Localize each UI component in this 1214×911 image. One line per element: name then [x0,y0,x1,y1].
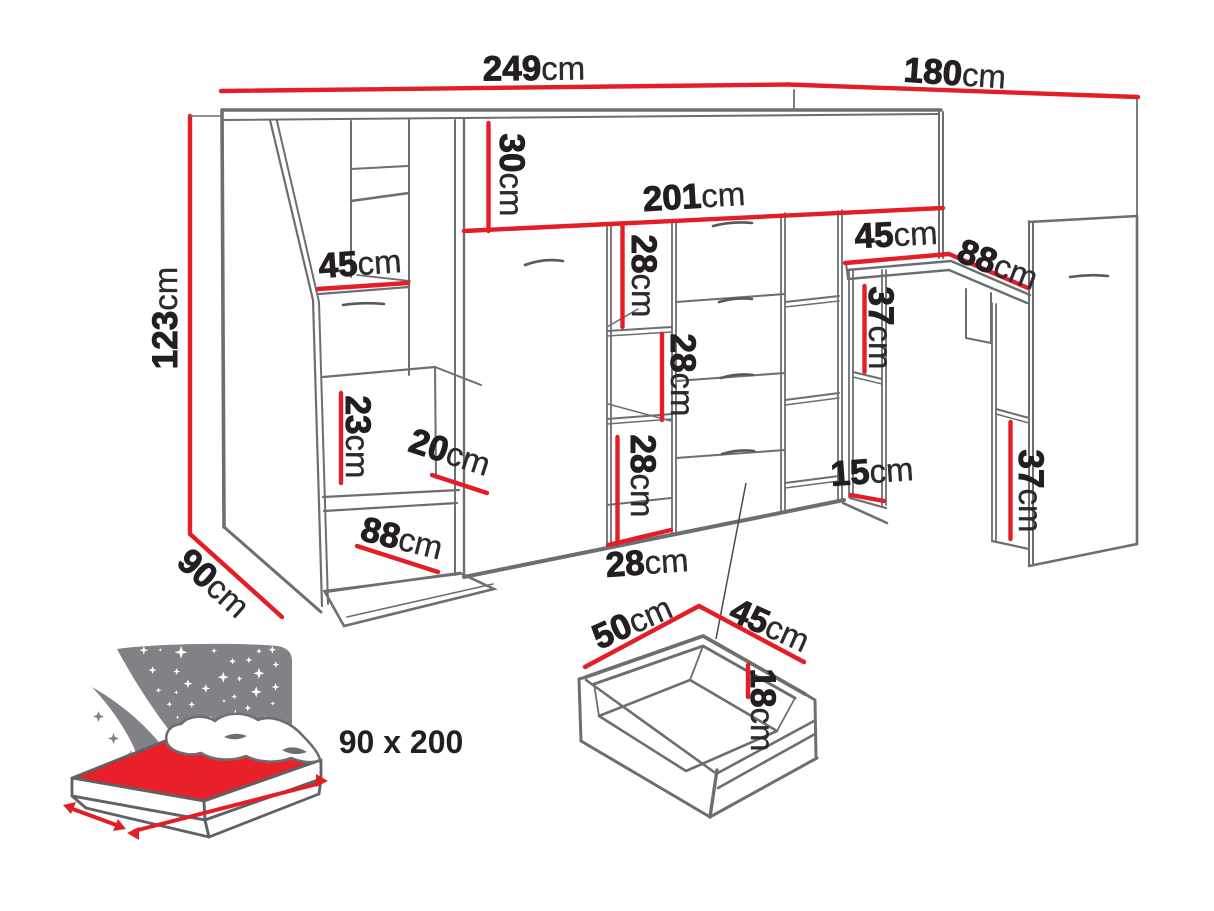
svg-text:123cm: 123cm [146,267,185,369]
svg-text:180cm: 180cm [903,50,1008,96]
svg-text:201cm: 201cm [642,174,747,219]
svg-text:249cm: 249cm [483,49,586,89]
svg-text:30cm: 30cm [492,134,531,217]
svg-text:45cm: 45cm [317,241,402,286]
svg-text:23cm: 23cm [338,396,377,479]
svg-text:37cm: 37cm [1011,450,1050,533]
svg-text:28cm: 28cm [604,540,689,585]
svg-text:45cm: 45cm [854,213,939,256]
svg-text:15cm: 15cm [829,449,914,494]
svg-text:28cm: 28cm [623,435,662,518]
svg-text:28cm: 28cm [663,334,702,417]
svg-text:37cm: 37cm [861,287,900,370]
svg-text:18cm: 18cm [743,669,782,752]
svg-text:90 x 200: 90 x 200 [339,724,464,760]
svg-text:28cm: 28cm [624,235,663,318]
